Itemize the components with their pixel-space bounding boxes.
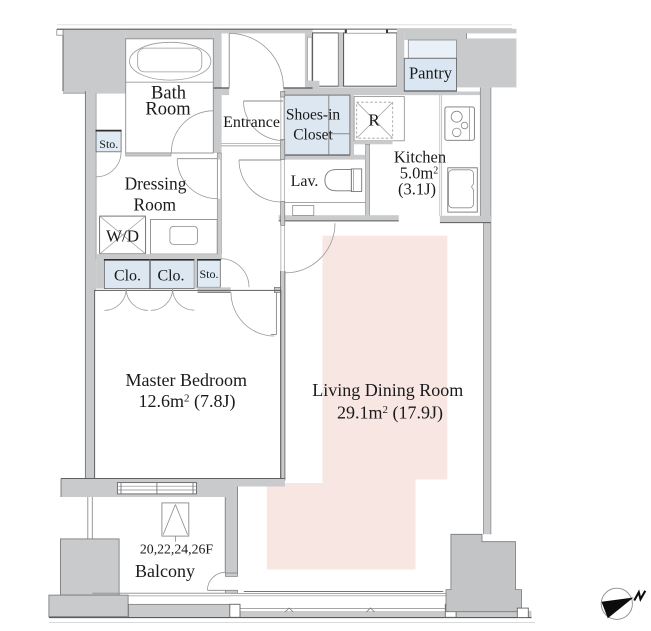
svg-text:Room: Room xyxy=(134,194,177,214)
svg-text:20,22,24,26F: 20,22,24,26F xyxy=(140,542,214,557)
svg-text:Room: Room xyxy=(145,99,191,119)
svg-text:R: R xyxy=(368,111,380,130)
svg-text:Sto.: Sto. xyxy=(99,137,118,151)
svg-text:Closet: Closet xyxy=(293,127,333,144)
svg-text:(3.1J): (3.1J) xyxy=(398,180,436,199)
svg-text:29.1m2 (17.9J): 29.1m2 (17.9J) xyxy=(337,403,443,424)
svg-text:W/D: W/D xyxy=(106,227,139,246)
svg-text:Living Dining Room: Living Dining Room xyxy=(312,380,463,400)
svg-text:Dressing: Dressing xyxy=(125,173,187,193)
svg-text:Lav.: Lav. xyxy=(291,173,319,190)
svg-text:Sto.: Sto. xyxy=(199,267,218,281)
svg-text:Balcony: Balcony xyxy=(135,561,195,581)
svg-text:Master Bedroom: Master Bedroom xyxy=(126,370,247,390)
svg-text:Entrance: Entrance xyxy=(223,114,280,131)
svg-text:Pantry: Pantry xyxy=(409,64,453,83)
svg-text:Clo.: Clo. xyxy=(157,267,184,284)
svg-text:Shoes-in: Shoes-in xyxy=(286,107,341,124)
svg-text:Clo.: Clo. xyxy=(114,267,141,284)
